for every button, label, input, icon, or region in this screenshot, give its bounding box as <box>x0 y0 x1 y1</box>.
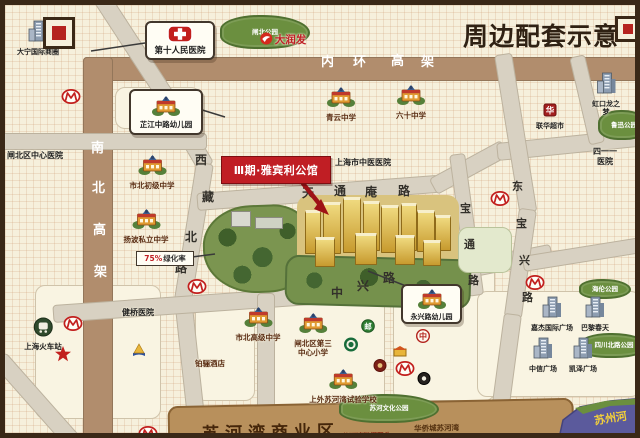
corner-ornament-left <box>43 17 75 49</box>
shanghai-tcm-hospital-label: 上海市中医医院 <box>335 158 391 168</box>
road-label-baotong: 宝 <box>460 203 471 214</box>
zhabei-no3-primary-school[interactable]: 闸北区第三 中心小学 <box>294 311 332 357</box>
jiajie-intl-plaza-label: 嘉杰国际广场 <box>531 324 573 332</box>
road-label-tiantongan: 庵 <box>365 186 377 198</box>
jiajie-intl-plaza[interactable]: 嘉杰国际广场 <box>531 295 573 332</box>
red-star-icon <box>54 345 72 367</box>
residence-tower <box>355 233 377 265</box>
road-north-south-elevated <box>83 57 113 438</box>
metro-station-7[interactable] <box>139 426 158 438</box>
metro-station-2-icon <box>188 279 207 298</box>
brand-black-icon <box>418 370 431 389</box>
jianqiao-hospital-label: 健桥医院 <box>122 308 154 318</box>
road-label-xizang-north: 藏 <box>202 191 214 203</box>
complex-west-building <box>231 211 251 227</box>
metro-station-5[interactable] <box>396 361 415 380</box>
road-label-dongbaoxing: 宝 <box>516 218 527 229</box>
zhongxin-plaza[interactable]: 中信广场 <box>529 336 557 373</box>
road-label-north-south: 高 <box>93 224 106 237</box>
road-label-north-south: 北 <box>92 182 105 195</box>
china-post-bank-icon: 邮 <box>361 318 375 337</box>
lianhua-supermarket-icon: 华 <box>543 102 557 121</box>
road-label-inner-ring: 环 <box>353 56 366 69</box>
residence-tower <box>423 240 441 266</box>
shibei-senior-high[interactable]: 市北高级中学 <box>236 305 281 342</box>
metro-station-4-icon <box>526 275 545 294</box>
no60-middle-school-label: 六十中学 <box>396 111 426 120</box>
complex-west-building <box>255 217 283 229</box>
daning-commercial-circle-label: 大宁国际商圈 <box>17 48 59 56</box>
road-label-dongbaoxing: 东 <box>512 181 523 192</box>
shanghai-railway-station-icon <box>33 317 53 341</box>
shibei-junior-high-label: 市北初级中学 <box>130 181 175 190</box>
road-label-tiantongan: 路 <box>398 185 410 197</box>
hospital-no10-callout-text: 第十人民医院 <box>154 47 205 56</box>
map-canvas[interactable]: 苏河湾商业区 苏河湾游艇码头 华侨城苏河湾 苏州河 Ⅲ期·雅宾利公馆 75% 绿… <box>0 0 640 438</box>
no60-middle-school[interactable]: 六十中学 <box>396 83 426 120</box>
rt-mart-icon <box>260 30 273 49</box>
street-shop-icon <box>392 342 408 361</box>
road-label-zhongxing: 兴 <box>357 280 369 292</box>
zhabei-no3-primary-school-label: 闸北区第三 中心小学 <box>294 339 332 357</box>
hongkou-longemont-icon <box>596 71 616 99</box>
shibei-junior-high-icon <box>138 153 166 180</box>
greening-rate-label: 75% 绿化率 <box>136 251 194 266</box>
svg-text:中: 中 <box>419 331 427 341</box>
brand-black[interactable] <box>418 370 431 389</box>
residence-tower <box>395 235 415 265</box>
sisu-suhewan-school-label: 上外苏河湾试验学校 <box>309 395 377 404</box>
road-label-north-south: 南 <box>91 142 104 155</box>
metro-station-7-icon <box>139 426 158 438</box>
sisu-suhewan-school[interactable]: 上外苏河湾试验学校 <box>309 367 377 404</box>
red-star[interactable] <box>54 345 72 367</box>
brand-pyramid-icon <box>131 342 147 361</box>
suzhou-river-label: 苏州河 <box>593 408 628 429</box>
printemps-label: 巴黎春天 <box>581 324 609 332</box>
kaize-plaza-label: 凯泽广场 <box>569 365 597 373</box>
sisu-suhewan-school-icon <box>329 367 357 394</box>
yangbo-private-school[interactable]: 扬波私立中学 <box>124 207 169 244</box>
brand-pyramid[interactable] <box>131 342 147 361</box>
china-post-bank[interactable]: 邮 <box>361 318 375 337</box>
yongxing-kindergarten-callout[interactable]: 永兴路幼儿园 <box>401 284 462 324</box>
greening-percent: 75% <box>144 254 162 263</box>
hospital-no10-callout-cross-icon <box>167 25 193 47</box>
road-label-xizang-north: 北 <box>185 231 197 243</box>
qube-hotel-label: 铂骊酒店 <box>195 359 225 368</box>
lianhua-supermarket-label: 联华超市 <box>536 122 564 130</box>
kaize-plaza-icon <box>573 336 593 364</box>
shanghai-tcm-hospital[interactable]: 上海市中医医院 <box>335 157 391 168</box>
oct-suhewan-label: 华侨城苏河湾 <box>414 422 459 434</box>
road-label-inner-ring: 高 <box>391 55 404 68</box>
yongxing-kindergarten-callout-text: 永兴路幼儿园 <box>411 314 453 322</box>
brand-orange-partial[interactable] <box>173 429 189 438</box>
street-shop[interactable] <box>392 342 408 361</box>
hospital-no10-callout[interactable]: 第十人民医院 <box>145 21 215 60</box>
residence-tower <box>315 237 335 267</box>
page-title: 周边配套示意 <box>463 17 619 53</box>
brand-darkred[interactable] <box>374 357 387 376</box>
corner-ornament-right <box>615 16 640 42</box>
road-label-inner-ring: 内 <box>321 56 334 69</box>
road-label-zhongxing: 路 <box>383 272 395 284</box>
rt-mart[interactable]: 大润发 <box>260 30 307 49</box>
road-label-inner-ring: 架 <box>421 56 434 69</box>
hongkou-longemont-label: 虹口龙之梦 <box>592 100 621 117</box>
greening-suffix: 绿化率 <box>163 253 186 264</box>
qube-hotel[interactable]: 铂骊酒店 <box>195 358 225 368</box>
no60-middle-school-icon <box>397 83 425 110</box>
road-label-baotong: 路 <box>468 275 479 286</box>
starbucks[interactable] <box>344 337 359 356</box>
zhabei-central-hospital[interactable]: 闸北区中心医院 <box>7 150 63 161</box>
zhijiang-kindergarten-callout-school-icon <box>152 94 180 121</box>
lianhua-supermarket[interactable]: 华联华超市 <box>536 102 564 130</box>
road-label-tiantongan: 天 <box>302 187 314 199</box>
metro-station-2[interactable] <box>188 279 207 298</box>
yangbo-private-school-label: 扬波私立中学 <box>124 235 169 244</box>
zhongxin-plaza-label: 中信广场 <box>529 365 557 373</box>
road-unnamed-right-horizontal <box>522 236 640 272</box>
yongxing-kindergarten-callout-school-icon <box>418 287 446 314</box>
road-label-north-south: 架 <box>94 266 107 279</box>
park-luxun-label: 鲁迅公园 <box>611 122 637 130</box>
metro-station-1[interactable] <box>62 89 81 108</box>
zhongxin-plaza-icon <box>533 336 553 364</box>
hospital-411[interactable]: 四一一医院 <box>590 146 620 166</box>
bank-of-china[interactable]: 中 <box>416 328 430 347</box>
hospital-411-label: 四一一医院 <box>590 147 620 166</box>
bank-of-china-icon: 中 <box>416 328 430 347</box>
shibei-junior-high[interactable]: 市北初级中学 <box>130 153 175 190</box>
hongkou-longemont[interactable]: 虹口龙之梦 <box>592 71 621 117</box>
road-label-dongbaoxing: 兴 <box>519 255 530 266</box>
brand-darkred-icon <box>374 357 387 376</box>
jiajie-intl-plaza-icon <box>542 295 562 323</box>
park-sichuan-north-label: 四川北路公园 <box>595 342 634 350</box>
zhijiang-kindergarten-callout-text: 芷江中路幼儿园 <box>140 121 193 129</box>
printemps[interactable]: 巴黎春天 <box>581 295 609 332</box>
starbucks-icon <box>344 337 359 356</box>
zhijiang-kindergarten-callout[interactable]: 芷江中路幼儿园 <box>129 89 203 135</box>
shibei-senior-high-icon <box>244 305 272 332</box>
park-suhe-culture-label: 苏河文化公园 <box>370 405 409 413</box>
road-label-zhongxing: 中 <box>331 287 343 299</box>
business-district-label: 苏河湾商业区 <box>202 417 340 438</box>
project-banner[interactable]: Ⅲ期·雅宾利公馆 <box>221 156 331 184</box>
shibei-senior-high-label: 市北高级中学 <box>236 333 281 342</box>
yangbo-private-school-icon <box>132 207 160 234</box>
metro-station-3-icon <box>491 191 510 210</box>
qingyun-middle-school-icon <box>327 85 355 112</box>
qingyun-middle-school-label: 青云中学 <box>326 113 356 122</box>
road-label-xizang-north: 西 <box>195 154 207 166</box>
qingyun-middle-school[interactable]: 青云中学 <box>326 85 356 122</box>
metro-station-3[interactable] <box>491 191 510 210</box>
road-label-baotong: 通 <box>464 239 475 250</box>
rt-mart-label: 大润发 <box>275 34 307 47</box>
printemps-icon <box>585 295 605 323</box>
park-hailun-label: 海伦公园 <box>592 286 618 294</box>
metro-station-5-icon <box>396 361 415 380</box>
metro-station-4[interactable] <box>526 275 545 294</box>
metro-station-1-icon <box>62 89 81 108</box>
zhabei-no3-primary-school-icon <box>299 311 327 338</box>
brand-orange-partial-icon <box>173 429 189 438</box>
svg-text:华: 华 <box>546 106 555 117</box>
jianqiao-hospital[interactable]: 健桥医院 <box>122 307 154 318</box>
metro-station-6-icon <box>64 316 83 335</box>
road-label-tiantongan: 通 <box>334 185 346 197</box>
svg-text:邮: 邮 <box>364 321 372 331</box>
zhabei-central-hospital-label: 闸北区中心医院 <box>7 151 63 161</box>
metro-station-6[interactable] <box>64 316 83 335</box>
kaize-plaza[interactable]: 凯泽广场 <box>569 336 597 373</box>
yacht-dock-label: 苏河湾游艇码头 <box>342 431 391 438</box>
